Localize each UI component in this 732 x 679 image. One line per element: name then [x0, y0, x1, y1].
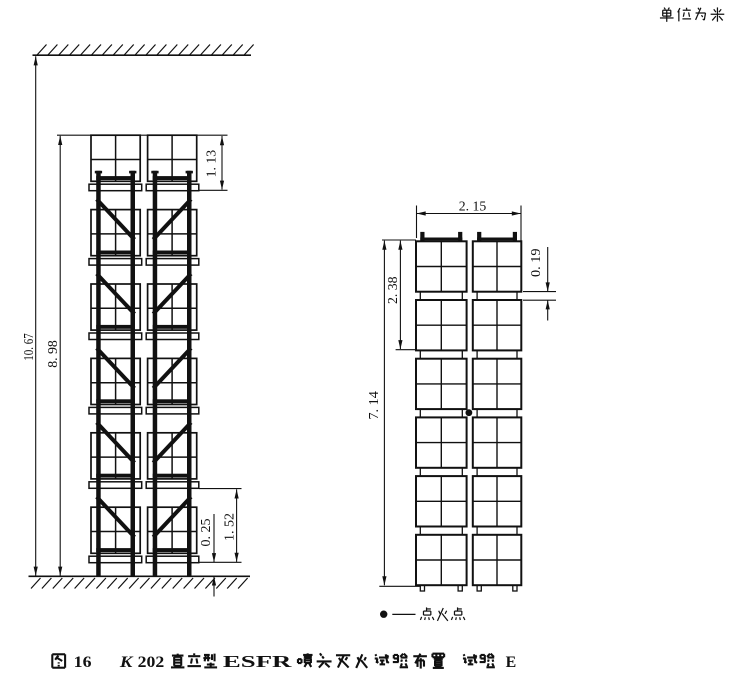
- svg-text:0. 25: 0. 25: [199, 519, 214, 547]
- svg-text:202: 202: [138, 654, 165, 671]
- svg-text:1. 52: 1. 52: [222, 513, 237, 541]
- svg-text:ESFR: ESFR: [223, 652, 293, 671]
- svg-text:1. 13: 1. 13: [205, 150, 220, 178]
- svg-text:2. 38: 2. 38: [386, 276, 401, 304]
- svg-text:7. 14: 7. 14: [367, 391, 382, 420]
- svg-text:16: 16: [74, 654, 92, 671]
- svg-text:2. 15: 2. 15: [459, 200, 487, 215]
- svg-text:10. 67: 10. 67: [22, 333, 37, 361]
- svg-text:K: K: [119, 654, 134, 671]
- svg-text:8. 98: 8. 98: [46, 340, 61, 368]
- svg-text:0. 19: 0. 19: [529, 249, 544, 278]
- svg-text:E: E: [506, 654, 517, 671]
